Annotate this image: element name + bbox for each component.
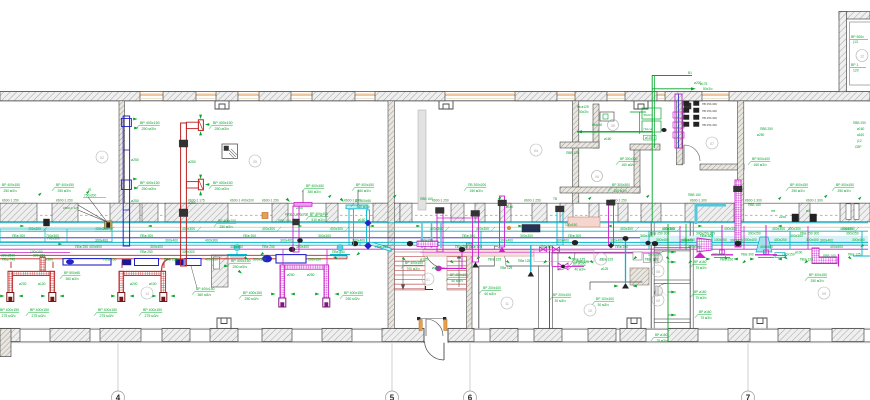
svg-text:ВР 400х150: ВР 400х150 — [405, 261, 423, 265]
svg-text:250 м3/ч: 250 м3/ч — [215, 127, 229, 131]
svg-text:700х300: 700х300 — [47, 237, 60, 241]
svg-text:12: 12 — [860, 54, 864, 58]
svg-text:ВР 200х100: ВР 200х100 — [553, 293, 571, 297]
svg-text:ВР 400х150: ВР 400х150 — [98, 308, 117, 312]
svg-text:400х300: 400х300 — [430, 227, 443, 231]
svg-text:ПВв 300: ПВв 300 — [741, 252, 754, 256]
svg-text:300х400: 300х400 — [280, 238, 293, 242]
svg-text:360 м3/ч: 360 м3/ч — [198, 293, 212, 297]
svg-text:(13: (13 — [853, 40, 858, 44]
svg-text:6: 6 — [468, 393, 473, 400]
svg-text:К600-1 300: К600-1 300 — [806, 199, 823, 203]
svg-text:ВР 400х150: ВР 400х150 — [356, 183, 374, 187]
svg-text:400х500: 400х500 — [760, 245, 773, 249]
svg-text:400х300: 400х300 — [620, 227, 633, 231]
svg-text:ВР 400х150: ВР 400х150 — [56, 183, 74, 187]
svg-text:ВР 400х150: ВР 400х150 — [243, 291, 262, 295]
svg-text:ø125: ø125 — [601, 267, 608, 271]
svg-text:01: 01 — [426, 278, 430, 282]
svg-text:ø250: ø250 — [188, 201, 196, 205]
svg-text:03: 03 — [599, 258, 603, 262]
svg-text:160 м3/ч: 160 м3/ч — [622, 163, 635, 167]
svg-text:300х250К: 300х250К — [1, 253, 15, 257]
svg-text:ø175: ø175 — [700, 82, 707, 86]
svg-text:300х400: 300х400 — [540, 245, 553, 249]
svg-text:400х150: 400х150 — [205, 257, 218, 261]
svg-text:75 м3/ч: 75 м3/ч — [701, 316, 712, 320]
svg-text:ø200: ø200 — [19, 282, 27, 286]
svg-text:400х500: 400х500 — [688, 245, 701, 249]
svg-text:ВР 400х150: ВР 400х150 — [218, 219, 236, 223]
svg-text:300х400: 300х400 — [500, 238, 513, 242]
svg-text:5: 5 — [390, 393, 395, 400]
svg-text:50х3/ч: 50х3/ч — [703, 87, 713, 91]
svg-text:К600-1 250: К600-1 250 — [56, 199, 73, 203]
svg-text:250 м3/ч: 250 м3/ч — [811, 279, 824, 283]
svg-text:11: 11 — [505, 302, 509, 306]
svg-text:ВР 400х150: ВР 400х150 — [0, 308, 19, 312]
svg-text:К600-1 300: К600-1 300 — [690, 199, 707, 203]
svg-text:В2: В2 — [806, 209, 810, 213]
svg-text:400х300: 400х300 — [330, 227, 343, 231]
svg-text:ВР 400х150: ВР 400х150 — [213, 181, 233, 185]
svg-text:К600-1 250: К600-1 250 — [432, 199, 449, 203]
svg-text:250 м3/ч: 250 м3/ч — [792, 189, 805, 193]
svg-text:ПВВ 250: ПВВ 250 — [103, 257, 117, 261]
svg-text:75 м3/ч: 75 м3/ч — [657, 339, 668, 343]
svg-text:ВР 400х150: ВР 400х150 — [306, 184, 324, 188]
svg-text:ПВ 250-300: ПВ 250-300 — [702, 116, 717, 120]
svg-text:300х400: 300х400 — [744, 238, 757, 242]
svg-text:ПВв 100: ПВв 100 — [645, 257, 658, 261]
svg-text:400х300: 400х300 — [205, 238, 218, 242]
svg-text:ПВв 250: ПВв 250 — [332, 250, 345, 254]
svg-text:09: 09 — [656, 299, 660, 303]
svg-text:(12: (12 — [857, 139, 862, 143]
svg-text:ПВв 250: ПВв 250 — [615, 245, 628, 249]
svg-text:250 м3/ч: 250 м3/ч — [245, 297, 259, 301]
svg-text:ВР ø160: ВР ø160 — [694, 260, 707, 264]
svg-text:10: 10 — [588, 309, 592, 313]
svg-text:400х300: 400х300 — [724, 227, 737, 231]
svg-text:09: 09 — [822, 292, 826, 296]
svg-text:ПВв 300: ПВв 300 — [140, 234, 153, 238]
svg-text:К600-1 250: К600-1 250 — [262, 199, 279, 203]
svg-text:ПВ: ПВ — [771, 209, 775, 213]
svg-text:ø160: ø160 — [857, 127, 864, 131]
svg-text:400х300: 400х300 — [476, 227, 489, 231]
svg-text:75 м3/ч: 75 м3/ч — [696, 296, 707, 300]
svg-text:360 м3/ч: 360 м3/ч — [66, 277, 79, 281]
svg-text:ø160: ø160 — [358, 218, 365, 222]
svg-text:ПВВ 160: ПВВ 160 — [688, 193, 701, 197]
svg-text:160 м3/ч: 160 м3/ч — [754, 163, 767, 167]
svg-text:В1: В1 — [688, 71, 692, 75]
svg-text:300х400: 300х400 — [556, 238, 569, 242]
svg-text:400х250: 400х250 — [774, 238, 787, 242]
svg-text:ВР 400х150: ВР 400х150 — [140, 181, 160, 185]
svg-text:ø200: ø200 — [130, 282, 138, 286]
svg-text:05: 05 — [253, 160, 257, 164]
svg-text:ВР 400х150: ВР 400х150 — [310, 212, 328, 216]
svg-text:ø250: ø250 — [307, 273, 315, 277]
svg-text:250 м3/ч: 250 м3/ч — [142, 127, 156, 131]
svg-text:ПВВ 160: ПВВ 160 — [420, 197, 433, 201]
svg-text:ПВ 250-300: ПВ 250-300 — [702, 102, 717, 106]
svg-text:300х400: 300х400 — [352, 238, 365, 242]
svg-text:К600-1 125: К600-1 125 — [63, 206, 79, 210]
svg-text:ВР 400х150: ВР 400х150 — [140, 121, 160, 125]
svg-text:300х300: 300х300 — [318, 234, 331, 238]
svg-text:ТВ: ТВ — [553, 197, 557, 201]
svg-text:ПВв 250: ПВв 250 — [140, 250, 153, 254]
svg-text:ВР 100х100: ВР 100х100 — [596, 297, 614, 301]
svg-text:250 м3/ч: 250 м3/ч — [142, 187, 156, 191]
svg-text:ПВв 125: ПВв 125 — [500, 266, 513, 270]
svg-text:ø100: ø100 — [149, 282, 157, 286]
svg-text:300х300: 300х300 — [182, 250, 195, 254]
svg-text:4: 4 — [116, 393, 121, 400]
svg-text:ø250: ø250 — [131, 158, 139, 162]
svg-text:04: 04 — [595, 175, 599, 179]
svg-text:ø160: ø160 — [506, 205, 513, 209]
svg-text:ø160: ø160 — [604, 137, 611, 141]
svg-text:ø200: ø200 — [779, 215, 786, 219]
svg-text:ПВ 250-300: ПВ 250-300 — [702, 109, 717, 113]
svg-text:100х150: 100х150 — [420, 238, 433, 242]
svg-text:ПВв 125: ПВв 125 — [518, 259, 531, 263]
svg-text:К600-1 400х200: К600-1 400х200 — [230, 199, 254, 203]
svg-text:100х150: 100х150 — [648, 252, 661, 256]
svg-text:ПВв 250 ПВв 100: ПВв 250 ПВв 100 — [455, 245, 482, 249]
svg-text:250 м3/ч: 250 м3/ч — [58, 189, 71, 193]
svg-text:120: 120 — [853, 69, 859, 73]
svg-text:250 м3/ч: 250 м3/ч — [233, 265, 247, 269]
svg-text:300х250 325: 300х250 325 — [696, 231, 715, 235]
svg-text:ПВВ 100: ПВВ 100 — [823, 254, 836, 258]
svg-text:250 м3/ч: 250 м3/ч — [220, 225, 233, 229]
svg-text:300х250: 300х250 — [33, 253, 45, 257]
svg-text:ВР 300х300: ВР 300х300 — [620, 157, 638, 161]
svg-text:ПВв 250 400х500: ПВв 250 400х500 — [75, 245, 102, 249]
svg-text:300х400: 300х400 — [806, 238, 819, 242]
svg-text:100х150: 100х150 — [308, 257, 321, 261]
svg-text:300х300: 300х300 — [520, 234, 533, 238]
svg-text:300х400: 300х400 — [852, 238, 865, 242]
svg-text:ПВВ 125: ПВВ 125 — [576, 260, 589, 264]
svg-text:ВР 400х150: ВР 400х150 — [213, 121, 233, 125]
svg-text:60 м3/ч: 60 м3/ч — [485, 292, 497, 296]
svg-text:ПВВ 160: ПВВ 160 — [278, 219, 291, 223]
svg-text:400х300: 400х300 — [788, 227, 801, 231]
svg-text:ø100: ø100 — [38, 282, 46, 286]
svg-text:100х150: 100х150 — [782, 252, 795, 256]
svg-text:250 м3/ч: 250 м3/ч — [838, 189, 851, 193]
svg-text:ø100: ø100 — [795, 251, 802, 255]
svg-text:ПВв 250: ПВв 250 — [262, 245, 275, 249]
svg-text:ВР 500х: ВР 500х — [851, 35, 864, 39]
svg-text:ВР 500х100: ВР 500х100 — [752, 157, 770, 161]
svg-text:360 м3/ч: 360 м3/ч — [358, 189, 371, 193]
svg-text:50х3/ч: 50х3/ч — [579, 110, 589, 114]
svg-text:а160: а160 — [857, 133, 864, 137]
svg-text:ПВВ 160: ПВВ 160 — [748, 203, 761, 207]
svg-text:К600-1 400х200: К600-1 400х200 — [285, 212, 308, 216]
svg-text:ВР 500х50: ВР 500х50 — [355, 199, 371, 203]
svg-text:ø250: ø250 — [287, 273, 295, 277]
svg-text:СВР: СВР — [855, 145, 862, 149]
svg-text:ПВв 300: ПВв 300 — [462, 234, 475, 238]
svg-text:ø250: ø250 — [131, 199, 139, 203]
svg-text:ВР 400х150: ВР 400х150 — [836, 183, 854, 187]
svg-text:275 м3/ч: 275 м3/ч — [32, 314, 46, 318]
svg-text:05: 05 — [611, 124, 615, 128]
svg-text:Пв1/чв: Пв1/чв — [644, 127, 653, 131]
svg-text:ПВ 300х200: ПВ 300х200 — [468, 183, 486, 187]
svg-text:300х400: 300х400 — [150, 245, 163, 249]
svg-text:04: 04 — [534, 149, 538, 153]
svg-text:400х300: 400х300 — [772, 227, 785, 231]
svg-text:275 м3/ч: 275 м3/ч — [2, 314, 16, 318]
svg-text:ВР 400х150: ВР 400х150 — [30, 308, 49, 312]
svg-text:275 м3/ч: 275 м3/ч — [145, 314, 159, 318]
svg-text:300х400: 300х400 — [820, 238, 833, 242]
svg-text:40 м3/ч: 40 м3/ч — [575, 267, 586, 271]
svg-text:ПВв 300: ПВв 300 — [568, 234, 581, 238]
svg-text:ПВв 300: ПВв 300 — [243, 234, 256, 238]
svg-text:ВР 200х100: ВР 200х100 — [450, 273, 468, 277]
svg-text:Осв 50: Осв 50 — [592, 123, 602, 127]
svg-text:ВР 1: ВР 1 — [851, 63, 858, 67]
svg-text:300х250: 300х250 — [748, 231, 761, 235]
svg-text:400х300: 400х300 — [182, 227, 195, 231]
svg-text:ø250: ø250 — [757, 133, 764, 137]
svg-text:750х200: 750х200 — [84, 194, 96, 198]
svg-text:07: 07 — [710, 142, 714, 146]
svg-text:ВР 400х150: ВР 400х150 — [196, 287, 215, 291]
svg-text:ВР 300х300: ВР 300х300 — [612, 183, 630, 187]
svg-text:ВР 400х150: ВР 400х150 — [231, 259, 251, 263]
svg-text:ВР 400х150: ВР 400х150 — [790, 183, 808, 187]
svg-text:250 м3/ч: 250 м3/ч — [215, 187, 229, 191]
svg-text:300х300: 300х300 — [253, 257, 266, 261]
svg-text:ВР 500х50: ВР 500х50 — [64, 271, 80, 275]
svg-text:150 м3/ч: 150 м3/ч — [470, 189, 483, 193]
svg-text:ПВв 125: ПВв 125 — [848, 252, 861, 256]
svg-text:08: 08 — [656, 270, 660, 274]
svg-text:К600-1 250: К600-1 250 — [2, 199, 19, 203]
svg-text:ПВв 300: ПВв 300 — [12, 234, 25, 238]
svg-text:02: 02 — [100, 156, 104, 160]
svg-text:ПВВ 250: ПВВ 250 — [760, 127, 773, 131]
svg-text:ВР 400х150: ВР 400х150 — [809, 273, 827, 277]
svg-text:50х3/ч: 50х3/ч — [644, 113, 653, 117]
svg-text:ВР 400х150: ВР 400х150 — [2, 183, 20, 187]
svg-text:ø125: ø125 — [420, 257, 428, 261]
svg-text:400х300: 400х300 — [662, 227, 675, 231]
svg-text:300х400: 300х400 — [730, 238, 743, 242]
svg-text:К600-1 300: К600-1 300 — [745, 199, 762, 203]
svg-text:300х150: 300х150 — [712, 252, 725, 256]
svg-text:ПВ 250-300: ПВ 250-300 — [702, 123, 717, 127]
svg-text:ВР ø160: ВР ø160 — [699, 310, 712, 314]
svg-text:К600-1 250: К600-1 250 — [524, 199, 541, 203]
svg-text:100х150: 100х150 — [565, 223, 577, 227]
svg-text:ø125: ø125 — [432, 266, 439, 270]
svg-text:400х500: 400х500 — [230, 245, 243, 249]
svg-text:250 м3/ч: 250 м3/ч — [346, 297, 360, 301]
svg-text:ВР ø160: ВР ø160 — [655, 333, 668, 337]
svg-text:ПВв 250 300: ПВв 250 300 — [800, 231, 819, 235]
svg-text:30 м3/ч: 30 м3/ч — [598, 303, 610, 307]
svg-text:400х250: 400х250 — [682, 238, 695, 242]
svg-text:100х150: 100х150 — [30, 250, 43, 254]
svg-text:ВР 400х150: ВР 400х150 — [344, 291, 363, 295]
svg-text:300х400: 300х400 — [610, 238, 623, 242]
svg-text:ВР 200х100: ВР 200х100 — [483, 286, 501, 290]
svg-text:7: 7 — [746, 393, 751, 400]
svg-text:400х300: 400х300 — [842, 227, 855, 231]
svg-text:160 м3/ч: 160 м3/ч — [614, 189, 627, 193]
svg-text:300х250: 300х250 — [846, 231, 859, 235]
svg-text:ПВв 250: ПВв 250 — [375, 245, 388, 249]
svg-text:ПВВ 255: ПВВ 255 — [164, 257, 178, 261]
svg-text:60 м3/ч: 60 м3/ч — [452, 279, 464, 283]
svg-text:300х400: 300х400 — [165, 238, 178, 242]
svg-text:ПВВ 250: ПВВ 250 — [853, 121, 866, 125]
svg-text:ПВв 125: ПВв 125 — [488, 257, 501, 261]
svg-text:700 м3/ч: 700 м3/ч — [407, 267, 420, 271]
svg-text:100х250: 100х250 — [714, 238, 727, 242]
svg-text:ПВВ 125: ПВВ 125 — [566, 151, 579, 155]
svg-text:ø125: ø125 — [645, 136, 652, 140]
svg-text:13: 13 — [145, 292, 149, 296]
svg-text:30 м3/ч: 30 м3/ч — [555, 299, 567, 303]
svg-text:400х300: 400х300 — [262, 227, 275, 231]
svg-text:ПВв 745: ПВв 745 — [2, 257, 15, 261]
svg-text:ПВв 250 300: ПВв 250 300 — [650, 231, 669, 235]
svg-text:360 м3/ч: 360 м3/ч — [357, 205, 370, 209]
svg-text:ВР 400х150: ВР 400х150 — [143, 308, 162, 312]
svg-text:510 м3/ч: 510 м3/ч — [312, 218, 325, 222]
svg-text:ВР ø160: ВР ø160 — [694, 290, 707, 294]
svg-text:300х400: 300х400 — [656, 238, 669, 242]
svg-text:275 м3/ч: 275 м3/ч — [100, 314, 114, 318]
svg-text:300х400: 300х400 — [296, 245, 309, 249]
svg-text:400х500: 400х500 — [830, 245, 843, 249]
svg-text:Кв ø125: Кв ø125 — [577, 105, 589, 109]
svg-text:ø250: ø250 — [188, 160, 196, 164]
svg-text:350 м3/ч: 350 м3/ч — [308, 190, 321, 194]
svg-text:250 м3/ч: 250 м3/ч — [4, 189, 17, 193]
svg-text:75 м3/ч: 75 м3/ч — [696, 266, 707, 270]
